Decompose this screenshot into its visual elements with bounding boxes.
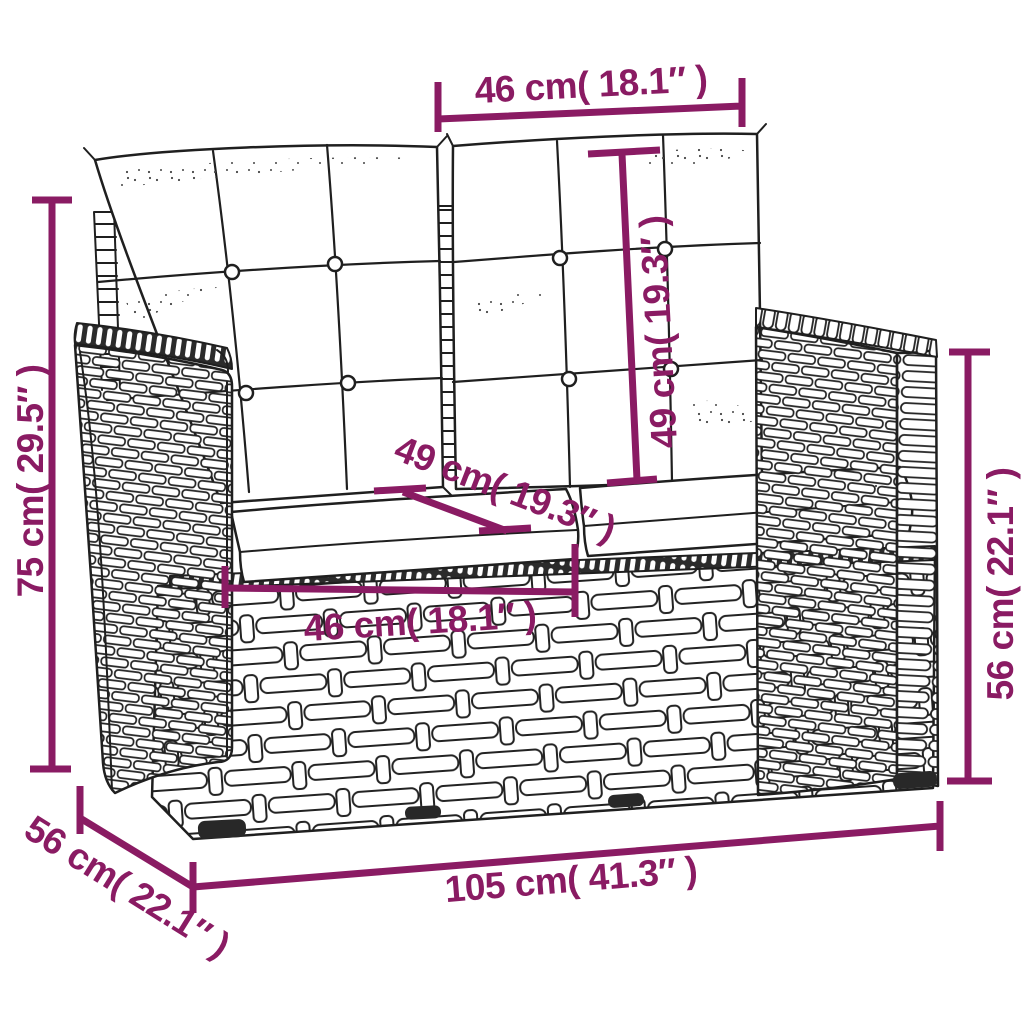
dimension-label-overall-height: 75 cm( 29.5″ ) xyxy=(10,365,52,598)
left-armrest xyxy=(75,323,232,793)
back-cushion-right xyxy=(447,124,770,489)
right-armrest xyxy=(756,308,938,795)
dimension-diagram: 46 cm( 18.1″ ) 49 cm( 19.3″ ) 75 cm( 29.… xyxy=(0,0,1024,1024)
dimension-label-armrest-height: 56 cm( 22.1″ ) xyxy=(980,468,1022,701)
